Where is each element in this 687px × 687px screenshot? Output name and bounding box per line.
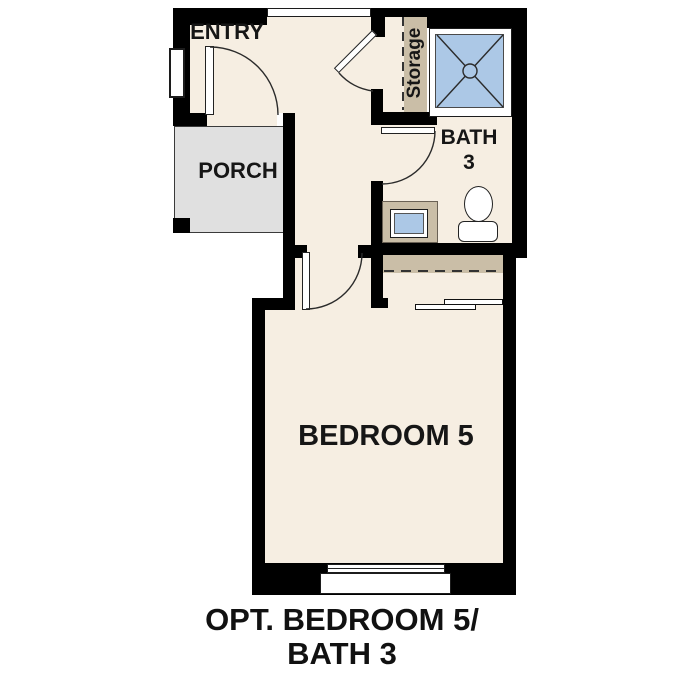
wall-entry-bottom [173, 113, 207, 126]
bedroom-label: BEDROOM 5 [298, 419, 474, 453]
wall-door-jamb [358, 245, 372, 258]
wall-hall-west-lower [283, 258, 295, 310]
wall-storage-top [385, 8, 427, 17]
wall-closet-foot [378, 298, 388, 308]
caption-line2: BATH 3 [205, 637, 479, 671]
toilet-bowl [464, 186, 493, 222]
storage-label: Storage [404, 28, 426, 99]
bath-label-line2: 3 [441, 151, 498, 176]
floorplan-canvas: ENTRY PORCH Storage BATH 3 BEDROOM 5 OPT… [0, 0, 687, 687]
porch-corner-post [173, 218, 190, 233]
wall-bath-south [371, 243, 512, 255]
wall-bath-north [371, 112, 437, 125]
porch-label: PORCH [198, 158, 277, 184]
bedroom-door-leaf [302, 252, 310, 310]
toilet-tank [458, 221, 498, 242]
caption-line1: OPT. BEDROOM 5/ [205, 603, 479, 637]
bedroom-window-glazing [327, 564, 445, 573]
bath-label-line1: BATH [441, 126, 498, 151]
wall-hall-west [283, 113, 295, 258]
sink-basin [394, 213, 424, 234]
window-mullion-line [328, 568, 444, 569]
entry-window [169, 48, 185, 98]
bath-label: BATH 3 [441, 126, 498, 176]
wall-right-upper [512, 8, 527, 258]
bath-door-leaf [381, 127, 435, 134]
front-door-opening [207, 113, 277, 126]
plan-caption: OPT. BEDROOM 5/ BATH 3 [205, 603, 479, 671]
storage-door-opening [371, 37, 383, 89]
bedroom-window-sill [320, 573, 451, 594]
hall-floor [295, 113, 371, 258]
top-wall-opening [267, 8, 371, 17]
closet-shelf [383, 255, 503, 273]
sliding-door-panel-front [415, 304, 476, 310]
front-door-leaf [205, 46, 214, 115]
shower-pan-floor [435, 34, 504, 108]
wall-bedroom-east [503, 243, 516, 595]
wall-bedroom-west [252, 310, 265, 595]
entry-label: ENTRY [190, 19, 264, 45]
